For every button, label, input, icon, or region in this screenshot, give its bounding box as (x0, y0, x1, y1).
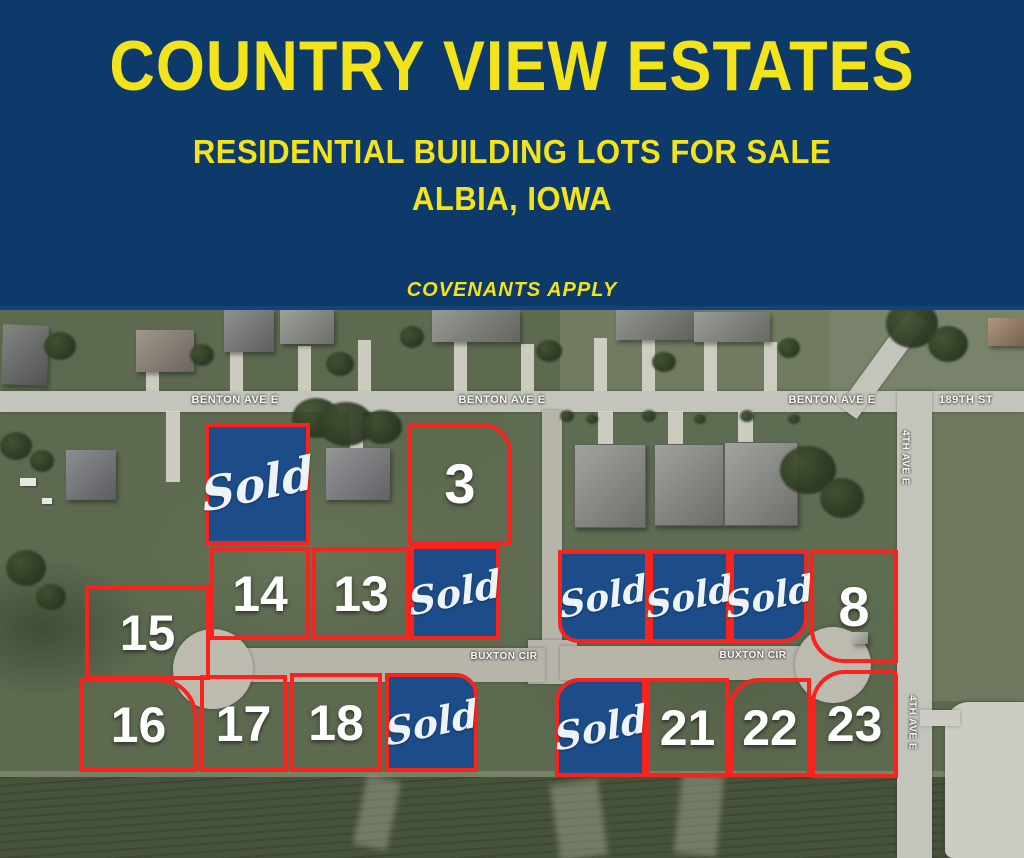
field-trace (674, 773, 724, 857)
lot-number: 15 (120, 608, 176, 658)
lot-3: 3 (408, 423, 512, 545)
driveway (764, 342, 777, 391)
header-banner: COUNTRY VIEW ESTATES RESIDENTIAL BUILDIN… (0, 0, 1024, 310)
lot-23: 23 (811, 670, 898, 778)
lot-number: 13 (333, 569, 389, 619)
tree (0, 432, 32, 460)
bush (642, 410, 656, 422)
sold-script-label: Sold (724, 569, 815, 623)
lot-number: 3 (444, 456, 475, 512)
townhouse (574, 444, 646, 528)
house (694, 312, 770, 342)
lot-17: 17 (200, 675, 287, 772)
sold-script-label: Sold (553, 699, 649, 757)
lot-22: 22 (729, 678, 811, 777)
lot-18: 18 (290, 673, 382, 772)
sold-script-label: Sold (558, 569, 649, 623)
tree (400, 326, 424, 348)
house (280, 310, 334, 344)
sold-script-label: Sold (644, 569, 735, 623)
lot-sold-d: Sold (649, 550, 730, 643)
tree (928, 326, 968, 362)
sold-script-label: Sold (200, 449, 316, 519)
gravel-path (920, 710, 960, 726)
house (66, 450, 116, 500)
street-label-benton-2: BENTON AVE E (447, 394, 557, 406)
townhouse (654, 444, 724, 526)
street-label-4th-ave-top: 4TH AVE E (900, 418, 911, 498)
driveway (704, 340, 717, 391)
driveway (166, 411, 180, 482)
tree (44, 332, 76, 360)
tree (36, 584, 66, 610)
tree (190, 344, 214, 366)
lot-number: 22 (742, 703, 798, 753)
bush (788, 414, 800, 424)
tree (6, 550, 46, 586)
bush (740, 410, 754, 422)
location-text: ALBIA, IOWA (0, 180, 1024, 219)
driveway (298, 346, 311, 391)
lot-number: 14 (232, 569, 288, 619)
driveway (454, 340, 467, 391)
tree (820, 478, 864, 518)
street-label-189th: 189TH ST (926, 394, 1006, 406)
bush (560, 410, 574, 422)
house (432, 310, 520, 342)
covenants-note: COVENANTS APPLY (0, 279, 1024, 302)
house (1, 324, 49, 386)
aerial-map: Sold 3 14 13 Sold 15 Sold Sold Sold 8 (0, 310, 1024, 858)
driveway (521, 344, 534, 391)
driveway (668, 411, 683, 445)
driveway (358, 340, 371, 391)
lot-sold-e: Sold (730, 550, 808, 643)
sold-script-label: Sold (407, 564, 503, 622)
lot-8: 8 (810, 550, 898, 663)
street-label-4th-ave-bottom: 4TH AVE E (907, 683, 918, 763)
lot-sold-a: Sold (205, 423, 310, 545)
house-tan-roof (988, 318, 1024, 346)
lot-15: 15 (85, 585, 210, 680)
lot-number: 16 (111, 700, 167, 750)
lot-sold-b: Sold (410, 545, 500, 640)
tree (30, 450, 54, 472)
tree (536, 340, 562, 362)
driveway (230, 350, 243, 391)
driveway (594, 338, 607, 391)
lot-sold-f: Sold (385, 673, 478, 772)
lot-16: 16 (80, 678, 197, 772)
subtitle: RESIDENTIAL BUILDING LOTS FOR SALE (0, 133, 1024, 172)
lot-number: 21 (660, 703, 716, 753)
driveway (598, 411, 613, 445)
lot-number: 8 (838, 579, 869, 635)
tree (362, 410, 402, 444)
street-label-buxton-west: BUXTON CIR (459, 651, 549, 662)
bush (694, 414, 706, 424)
lot-number: 18 (308, 698, 364, 748)
lot-13: 13 (312, 547, 410, 640)
lot-sold-c: Sold (558, 550, 649, 643)
lot-14: 14 (210, 547, 310, 640)
tree (652, 352, 676, 372)
lot-number: 23 (827, 699, 883, 749)
house (326, 448, 390, 500)
tree (778, 338, 800, 358)
lot-21: 21 (646, 678, 729, 777)
page-title: COUNTRY VIEW ESTATES (0, 26, 1024, 107)
lot-sold-g: Sold (555, 678, 646, 777)
house (136, 330, 194, 372)
lot-number: 17 (216, 699, 272, 749)
flyer: COUNTRY VIEW ESTATES RESIDENTIAL BUILDIN… (0, 0, 1024, 858)
trailer (42, 498, 52, 504)
street-label-buxton-east: BUXTON CIR (708, 650, 798, 661)
house (224, 310, 274, 352)
grass-patch (932, 411, 1024, 701)
bush (586, 414, 598, 424)
farm-field (0, 777, 1024, 858)
sold-script-label: Sold (384, 694, 480, 752)
street-label-benton-1: BENTON AVE E (180, 394, 290, 406)
street-label-benton-3: BENTON AVE E (777, 394, 887, 406)
house (616, 310, 696, 340)
tree (326, 352, 354, 376)
trailer (20, 478, 36, 486)
